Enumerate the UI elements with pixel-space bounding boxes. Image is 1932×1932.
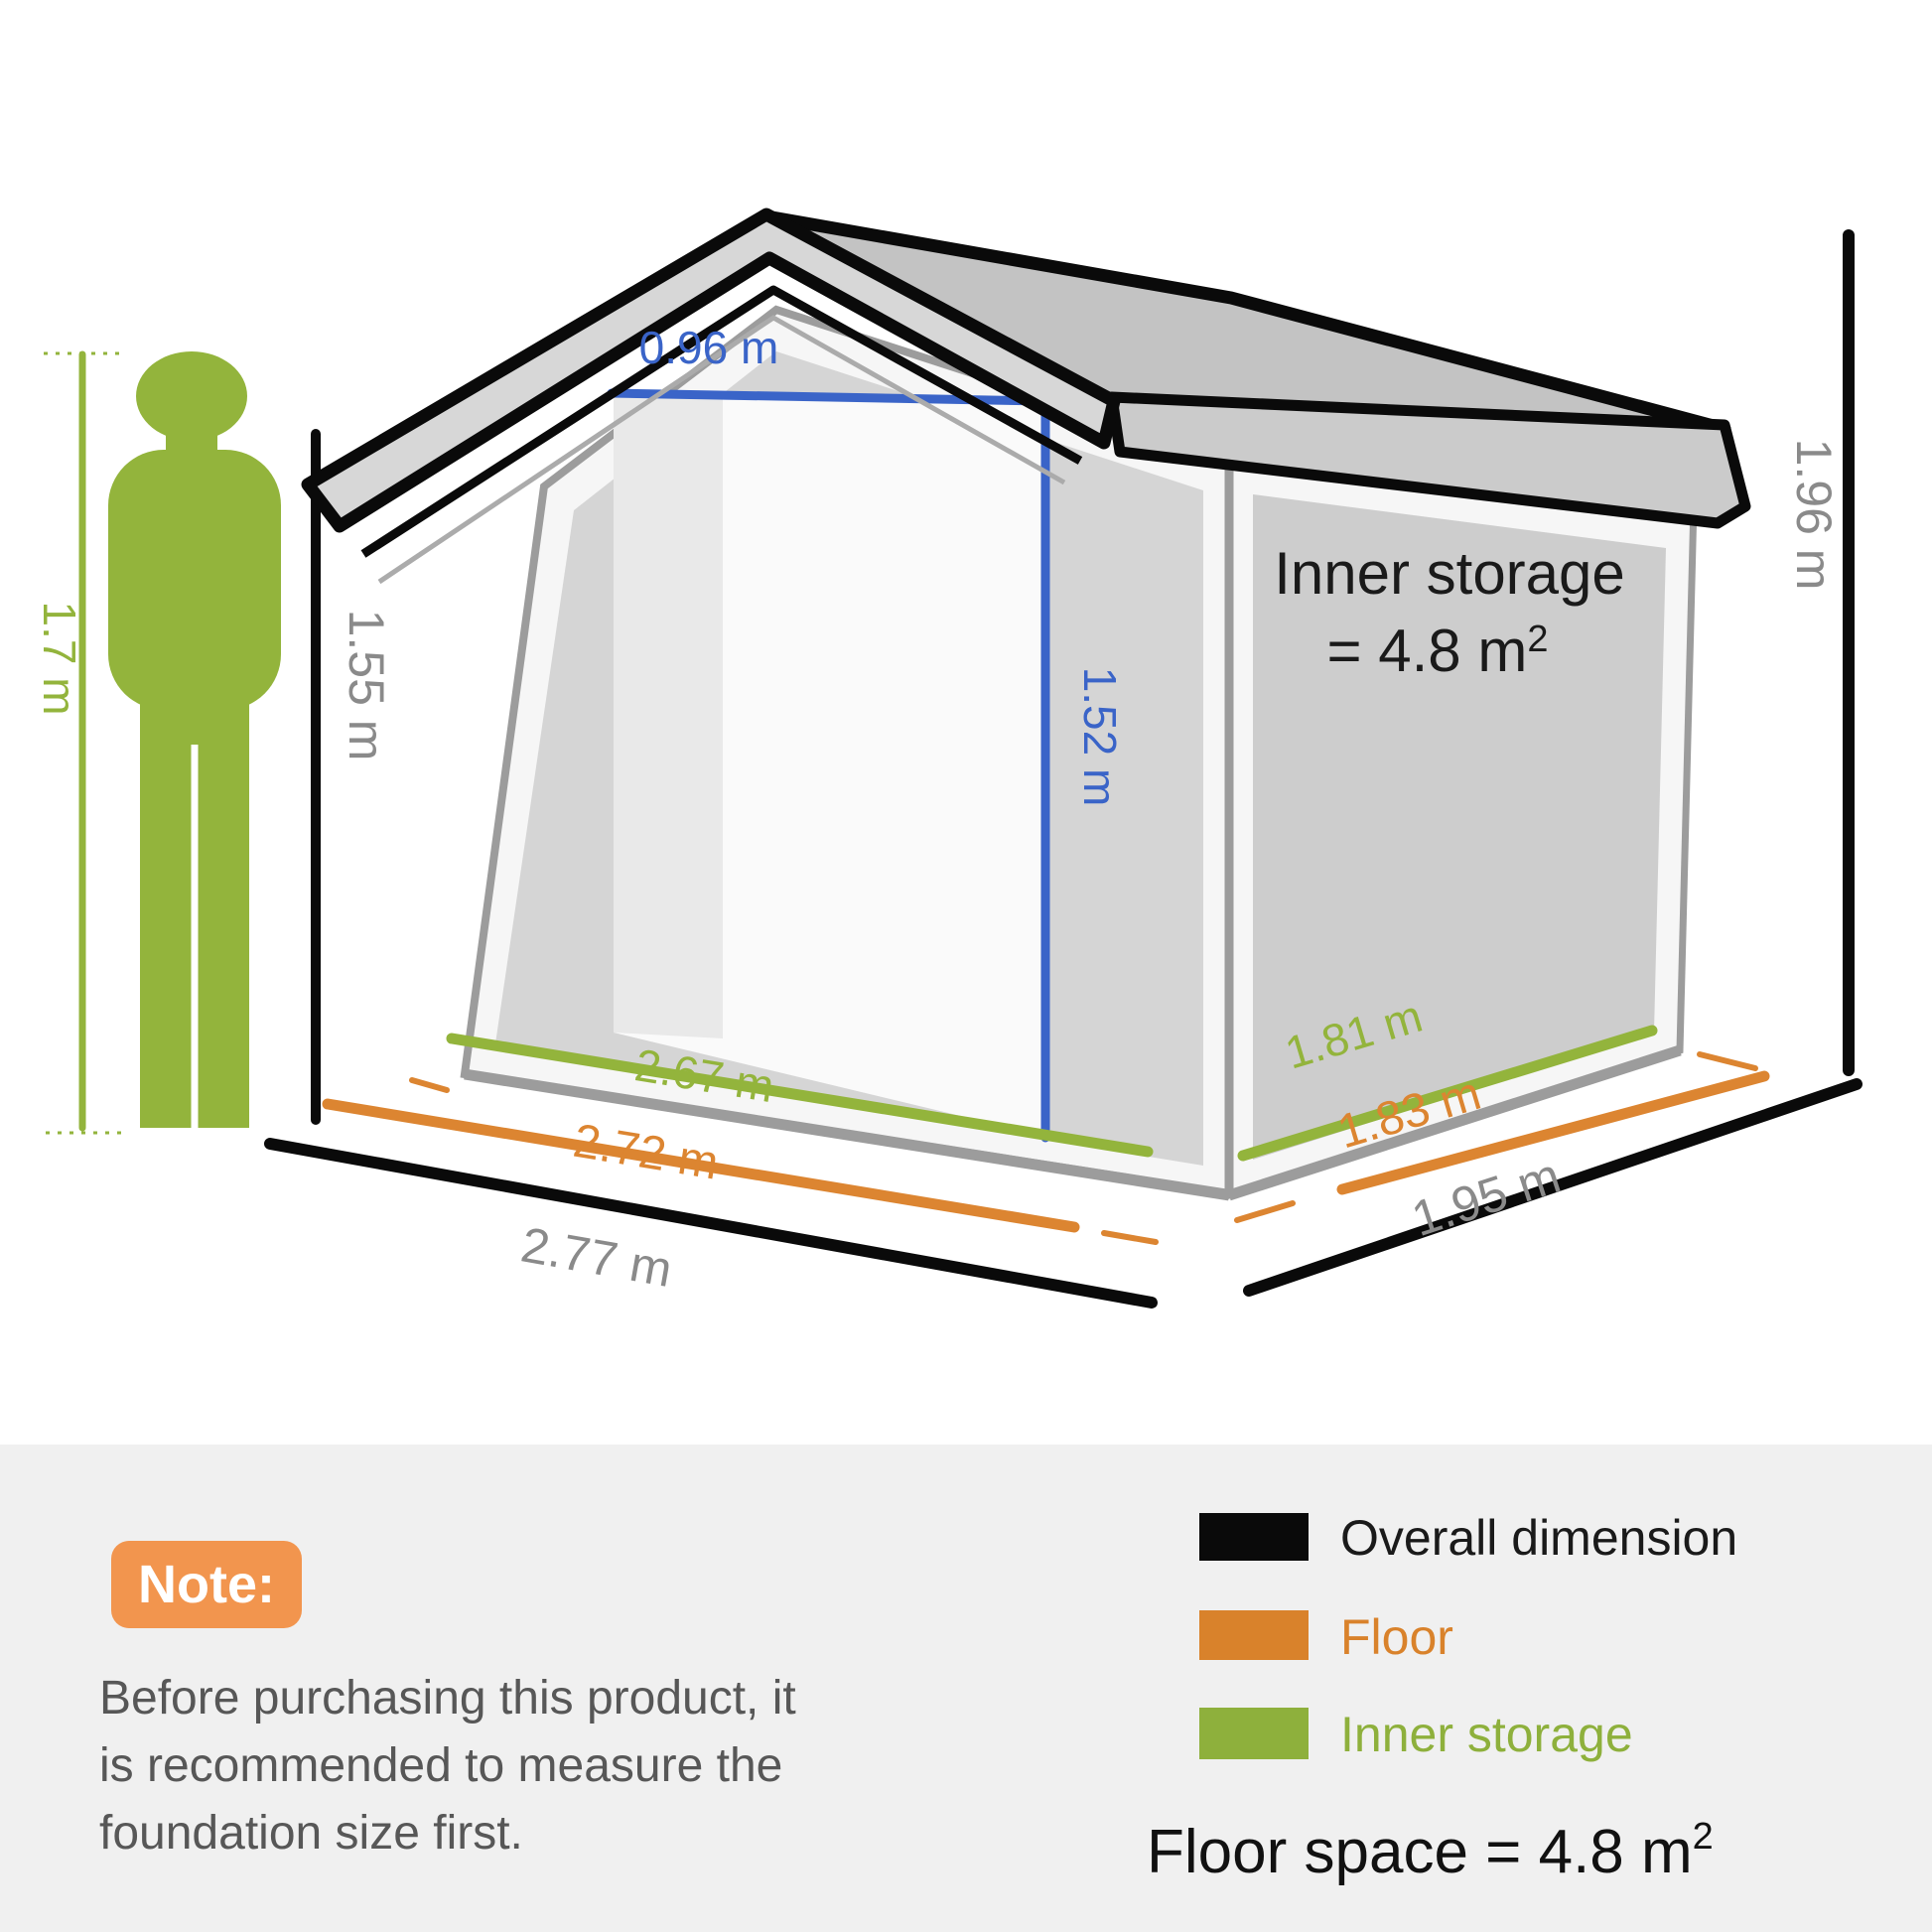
floor-space-base: Floor space = 4.8 m [1147, 1818, 1693, 1886]
legend-label-inner-storage: Inner storage [1340, 1707, 1633, 1762]
inner-storage-value-sup: 2 [1527, 619, 1548, 660]
door-shade [614, 395, 723, 1038]
person-torso [108, 450, 281, 710]
floor-space-sup: 2 [1693, 1816, 1714, 1858]
inner-storage-value: = 4.8 m2 [1327, 618, 1549, 684]
inner-storage-value-base: = 4.8 m [1327, 618, 1528, 684]
legend-swatch-floor [1199, 1610, 1309, 1660]
overall-height-label: 1.96 m [1786, 439, 1842, 591]
floor-width-label: 2.72 m [570, 1115, 722, 1190]
floor-depth-dash-right [1700, 1054, 1755, 1068]
person-height-label: 1.7 m [34, 601, 85, 715]
person-head [136, 351, 247, 441]
person-figure: 1.7 m [34, 351, 281, 1133]
note-badge-label: Note: [138, 1555, 275, 1614]
legend-swatch-overall [1199, 1513, 1309, 1561]
inner-storage-title: Inner storage [1274, 540, 1625, 607]
diagram-canvas: 1.7 m 1.55 m Inner storage = 4.8 m2 2.6 [0, 0, 1932, 1932]
floor-width-dash-left [412, 1080, 447, 1090]
door-width-label: 0.96 m [639, 322, 779, 373]
legend-label-floor: Floor [1340, 1609, 1453, 1665]
legend-swatch-inner-storage [1199, 1708, 1309, 1759]
note-line-1: Before purchasing this product, it [99, 1672, 796, 1725]
shed-dimension-diagram: 1.7 m 1.55 m Inner storage = 4.8 m2 2.6 [0, 0, 1932, 1932]
overall-width-label: 2.77 m [517, 1216, 676, 1298]
note-line-2: is recommended to measure the [99, 1739, 782, 1792]
floor-space-label: Floor space = 4.8 m2 [1147, 1816, 1714, 1886]
floor-width-dash-right [1104, 1233, 1156, 1242]
note-line-3: foundation size first. [99, 1807, 523, 1860]
door-height-label: 1.52 m [1074, 667, 1126, 807]
legend-label-overall: Overall dimension [1340, 1510, 1737, 1566]
floor-depth-dash-left [1237, 1203, 1293, 1220]
wall-height-label: 1.55 m [339, 610, 394, 761]
